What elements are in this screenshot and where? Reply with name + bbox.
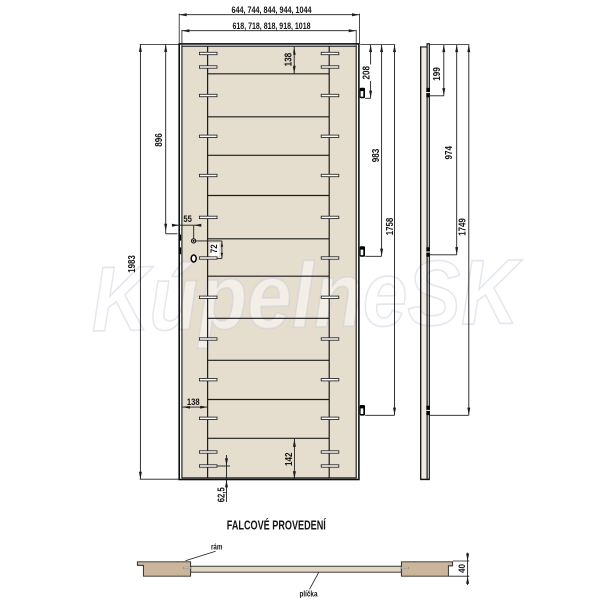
svg-text:983: 983: [371, 148, 382, 162]
svg-text:1758: 1758: [385, 217, 396, 235]
svg-text:644, 744, 844, 944, 1044: 644, 744, 844, 944, 1044: [232, 5, 313, 16]
svg-text:rám: rám: [211, 542, 223, 551]
svg-text:FALCOVÉ PROVEDENÍ: FALCOVÉ PROVEDENÍ: [227, 518, 326, 533]
svg-text:plíčka: plíčka: [300, 590, 318, 599]
svg-text:72: 72: [209, 244, 220, 253]
svg-text:618, 718, 818, 918, 1018: 618, 718, 818, 918, 1018: [233, 21, 311, 32]
svg-text:142: 142: [284, 452, 295, 466]
svg-text:138: 138: [187, 397, 200, 407]
svg-text:896: 896: [154, 133, 165, 147]
svg-text:62,5: 62,5: [216, 487, 227, 502]
svg-text:1749: 1749: [458, 218, 469, 236]
svg-text:KúpelneSK: KúpelneSK: [90, 241, 524, 351]
svg-text:199: 199: [432, 67, 443, 81]
svg-text:974: 974: [444, 146, 455, 160]
svg-text:138: 138: [283, 52, 294, 66]
svg-text:1983: 1983: [127, 255, 138, 273]
svg-text:208: 208: [361, 66, 372, 80]
svg-text:55: 55: [183, 214, 192, 224]
svg-text:40: 40: [457, 564, 468, 573]
